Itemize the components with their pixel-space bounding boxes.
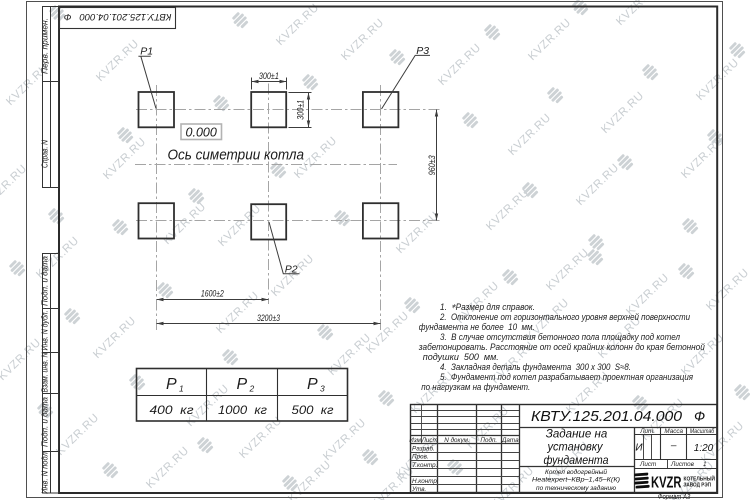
svg-text:1:20: 1:20 [694, 443, 714, 454]
svg-text:KVZR: KVZR [651, 475, 682, 492]
svg-text:P: P [307, 376, 318, 393]
svg-text:500 кг: 500 кг [292, 403, 334, 417]
svg-text:Н.контр.: Н.контр. [412, 478, 439, 485]
svg-text:KVZR.RU: KVZR.RU [269, 253, 316, 299]
svg-text:KVZR.RU: KVZR.RU [544, 247, 591, 293]
svg-text:по техническому заданию: по техническому заданию [536, 484, 616, 492]
svg-text:Дата: Дата [501, 437, 519, 444]
svg-text:1600±2: 1600±2 [201, 288, 224, 298]
svg-text:3200±3: 3200±3 [257, 313, 280, 323]
svg-text:Задание на: Задание на [546, 428, 608, 440]
svg-text:KVZR.RU: KVZR.RU [704, 267, 750, 313]
svg-text:KVZR.RU: KVZR.RU [216, 203, 263, 249]
svg-text:ЗАВОД РЭП: ЗАВОД РЭП [684, 483, 712, 489]
svg-text:400 кг: 400 кг [150, 403, 194, 417]
svg-text:–: – [670, 441, 677, 452]
svg-text:Масса: Масса [664, 428, 683, 435]
svg-text:3: 3 [320, 384, 325, 394]
svg-text:КВТУ.125.201.04.000: КВТУ.125.201.04.000 [531, 408, 683, 425]
svg-text:Лист: Лист [421, 437, 438, 444]
svg-text:KVZR.RU: KVZR.RU [54, 412, 101, 458]
svg-text:И: И [635, 443, 643, 454]
svg-text:300±1: 300±1 [295, 100, 305, 120]
svg-text:Котел водогрейный: Котел водогрейный [545, 468, 607, 476]
svg-text:KVZR.RU: KVZR.RU [0, 163, 30, 209]
svg-text:P2: P2 [285, 263, 298, 275]
svg-text:KVZR.RU: KVZR.RU [436, 42, 483, 88]
svg-text:Пров.: Пров. [412, 454, 429, 461]
svg-text:KVZR.RU: KVZR.RU [94, 38, 141, 84]
svg-text:фундамента: фундамента [544, 455, 609, 467]
svg-text:Ф: Ф [694, 408, 705, 424]
svg-text:Ось симетрии котла: Ось симетрии котла [168, 147, 305, 164]
svg-text:KVZR.RU: KVZR.RU [91, 315, 138, 361]
svg-text:KVZR.RU: KVZR.RU [489, 465, 536, 500]
svg-text:Heatexpert–КВр–1,45–К(К): Heatexpert–КВр–1,45–К(К) [532, 477, 620, 484]
svg-text:Т.контр.: Т.контр. [412, 462, 437, 469]
svg-text:KVZR.RU: KVZR.RU [599, 90, 646, 136]
svg-text:Инв. N дубл.: Инв. N дубл. [40, 311, 49, 351]
svg-text:Справ. N: Справ. N [40, 140, 49, 168]
svg-text:KVZR.RU: KVZR.RU [0, 337, 44, 383]
svg-text:по нагрузкам на фундамент.: по нагрузкам на фундамент. [421, 381, 530, 392]
svg-text:Лист: Лист [639, 461, 656, 468]
svg-text:KVZR.RU: KVZR.RU [326, 332, 373, 378]
svg-text:300±1: 300±1 [259, 71, 279, 81]
svg-text:KVZR.RU: KVZR.RU [274, 2, 321, 48]
svg-text:Перв. примен.: Перв. примен. [40, 18, 49, 74]
svg-text:Утв.: Утв. [411, 486, 426, 493]
svg-text:KVZR.RU: KVZR.RU [526, 17, 573, 63]
svg-text:P: P [237, 376, 248, 393]
svg-text:KVZR.RU: KVZR.RU [614, 0, 661, 28]
svg-text:0.000: 0.000 [186, 125, 217, 139]
svg-text:1000 кг: 1000 кг [218, 403, 267, 417]
svg-text:Подп. и дата: Подп. и дата [40, 396, 49, 447]
svg-text:2: 2 [249, 384, 255, 394]
svg-text:Подп.: Подп. [480, 436, 497, 444]
svg-text:1: 1 [179, 384, 184, 394]
svg-text:KVZR.RU: KVZR.RU [506, 112, 553, 158]
svg-text:Разраб.: Разраб. [412, 444, 435, 452]
svg-text:P3: P3 [416, 45, 429, 57]
svg-text:P: P [166, 376, 177, 393]
svg-text:1: 1 [703, 461, 707, 468]
svg-text:Ф: Ф [64, 11, 72, 22]
svg-text:KVZR.RU: KVZR.RU [394, 210, 441, 256]
svg-text:Лит.: Лит. [639, 428, 655, 435]
svg-text:Формат А3: Формат А3 [658, 494, 691, 500]
svg-text:KVZR.RU: KVZR.RU [574, 162, 621, 208]
svg-text:P1: P1 [140, 46, 153, 58]
svg-text:960±3: 960±3 [427, 155, 437, 175]
svg-text:KVZR.RU: KVZR.RU [364, 310, 411, 356]
svg-text:Масштаб: Масштаб [690, 427, 715, 435]
svg-text:Инв. N подл.: Инв. N подл. [40, 450, 49, 494]
svg-text:KVZR.RU: KVZR.RU [369, 465, 416, 500]
svg-text:КОТЕЛЬНЫЙ: КОТЕЛЬНЫЙ [684, 475, 716, 483]
svg-text:установку: установку [547, 442, 604, 454]
svg-text:KVZR.RU: KVZR.RU [144, 445, 191, 491]
svg-text:KVZR.RU: KVZR.RU [101, 136, 148, 182]
svg-text:КВТУ.125.201.04.000: КВТУ.125.201.04.000 [79, 11, 172, 22]
svg-text:KVZR.RU: KVZR.RU [339, 17, 386, 63]
svg-text:N докум.: N докум. [444, 436, 469, 444]
svg-text:KVZR.RU: KVZR.RU [321, 417, 368, 463]
svg-text:Взам. инв. N: Взам. инв. N [40, 352, 49, 392]
svg-text:KVZR.RU: KVZR.RU [161, 201, 208, 247]
svg-text:Листов: Листов [670, 461, 695, 468]
svg-text:Подп. и дата: Подп. и дата [40, 255, 49, 306]
